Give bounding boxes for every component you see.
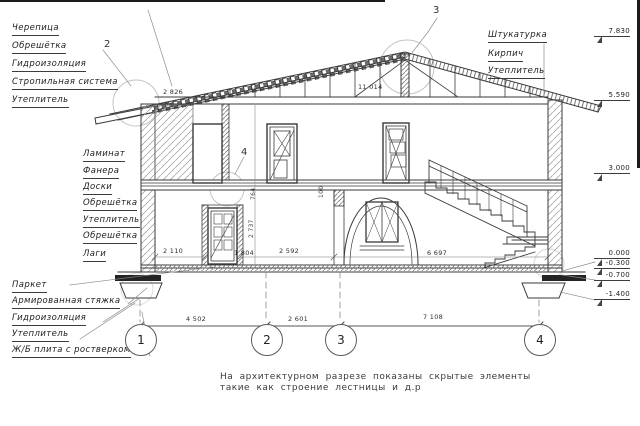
floor-layer-label: Ламинат — [83, 150, 125, 162]
floor-layer-label: Обрешётка — [83, 232, 137, 244]
roof-layer-label: Обрешётка — [12, 42, 66, 54]
grid-axis-bubble: 4 — [524, 324, 556, 356]
detail-marker: 2 — [104, 40, 110, 50]
dimension-axis-1-2: 4 502 — [186, 316, 206, 323]
wall-layer-label: Утеплитель — [488, 67, 545, 79]
drawing-note-line: На архитектурном разрезе показаны скрыты… — [220, 372, 531, 384]
section-linework — [0, 0, 640, 426]
roof-layer-label: Утеплитель — [12, 96, 69, 108]
elevation-mark: 7.830 — [594, 28, 630, 37]
floor-layer-label: Лаги — [83, 250, 106, 262]
floor-layer-label: Доски — [83, 183, 112, 195]
elevation-mark: -1.400 — [594, 291, 630, 300]
grid-axis-bubble: 2 — [251, 324, 283, 356]
detail-marker: 4 — [241, 148, 247, 158]
floor-layer-label: Обрешётка — [83, 199, 137, 211]
dimension-room-right: 6 697 — [427, 250, 447, 257]
dimension-door-width: 1 804 — [234, 250, 254, 257]
dimension-axis-3-4: 7 108 — [423, 314, 443, 321]
wall-layer-label: Штукатурка — [488, 31, 547, 43]
grid-axis-number: 1 — [137, 334, 145, 346]
ground-layer-label: Ж/Б плита с ростверком — [12, 346, 131, 358]
ground-layer-label: Гидроизоляция — [12, 314, 86, 326]
dimension-room-left: 2 110 — [163, 248, 183, 255]
elevation-mark: -0.300 — [594, 260, 630, 269]
elevation-mark: 5.590 — [594, 92, 630, 101]
grid-axis-number: 3 — [337, 334, 345, 346]
detail-marker: 3 — [433, 6, 439, 16]
grid-axis-number: 2 — [263, 334, 271, 346]
drawing-note-line: такие как строение лестницы и д.р — [220, 383, 421, 395]
ground-layer-label: Армированная стяжка — [12, 297, 120, 309]
elevation-mark: 0.000 — [594, 250, 630, 259]
dimension-axis-2-3: 2 601 — [288, 316, 308, 323]
elevation-mark: 3.000 — [594, 165, 630, 174]
grid-axis-number: 4 — [536, 334, 544, 346]
grid-axis-bubble: 1 — [125, 324, 157, 356]
grid-axis-bubble: 3 — [325, 324, 357, 356]
roof-layer-label: Стропильная система — [12, 78, 118, 90]
dimension-transom: 764 — [251, 188, 257, 200]
roof-layer-label: Черепица — [12, 24, 59, 36]
ground-layer-label: Утеплитель — [12, 330, 69, 342]
dimension-roof-left: 2 826 — [163, 89, 183, 96]
roof-layer-label: Гидроизоляция — [12, 60, 86, 72]
floor-layer-label: Утеплитель — [83, 216, 140, 228]
foundation — [115, 275, 586, 298]
dimension-attic-span: 11 014 — [358, 84, 383, 91]
wall-layer-label: Кирпич — [488, 50, 523, 62]
dimension-room-mid: 2 592 — [279, 248, 299, 255]
arch-opening — [334, 190, 418, 265]
dimension-door-height: 2 737 — [249, 219, 255, 238]
elevation-mark: -0.700 — [594, 272, 630, 281]
dimension-beam: 100 — [319, 186, 325, 198]
architectural-section-drawing: Черепица Обрешётка Гидроизоляция Стропил… — [0, 0, 640, 426]
ground-layer-label: Паркет — [12, 281, 47, 293]
floor-layer-label: Фанера — [83, 167, 119, 179]
